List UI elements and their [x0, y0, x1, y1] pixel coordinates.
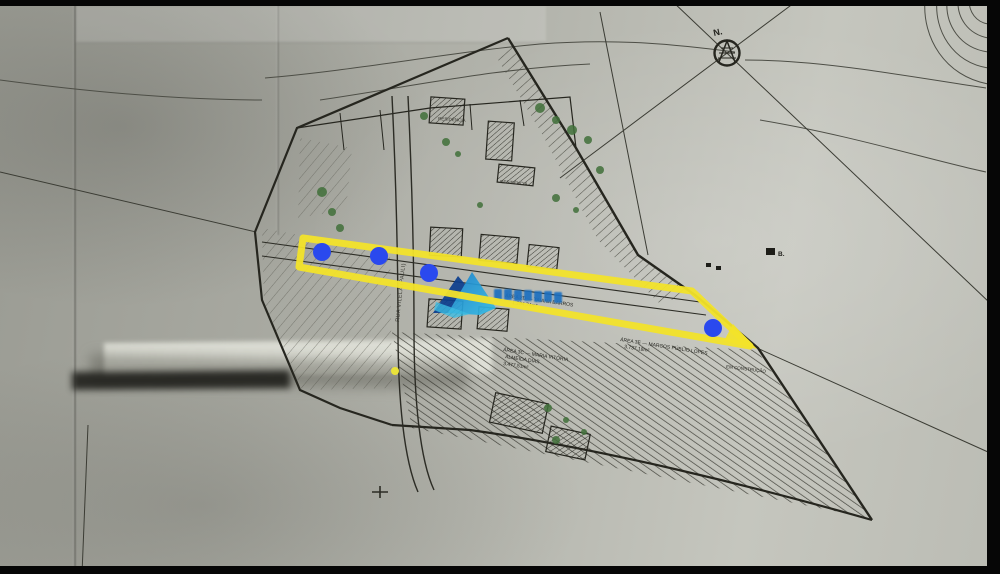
photo-edge-bottom — [0, 566, 1000, 574]
road-end-symbol — [372, 486, 388, 498]
point-b-label: B. — [778, 251, 785, 258]
blue-marker-dot — [370, 247, 388, 265]
blue-marker-dot — [420, 264, 438, 282]
small-marks: B. — [706, 248, 785, 270]
compass-north-label: N. — [712, 26, 723, 38]
blue-marker-dot — [313, 243, 331, 261]
photo-of-site-plan: N. B. RUA VILELA (PAULI) ÁREA 2D — TAIAN… — [0, 0, 1000, 574]
road-name-label: RUA VILELA (PAULI) — [395, 263, 407, 322]
small-yellow-marker — [391, 367, 399, 375]
hatch-band-lower — [392, 332, 870, 518]
blue-marker-dot — [704, 319, 722, 337]
north-compass: N. — [712, 26, 739, 65]
site-plan-drawing: N. B. RUA VILELA (PAULI) ÁREA 2D — TAIAN… — [0, 0, 1000, 574]
photo-edge-top — [0, 0, 1000, 6]
photo-edge-right — [987, 0, 1000, 574]
